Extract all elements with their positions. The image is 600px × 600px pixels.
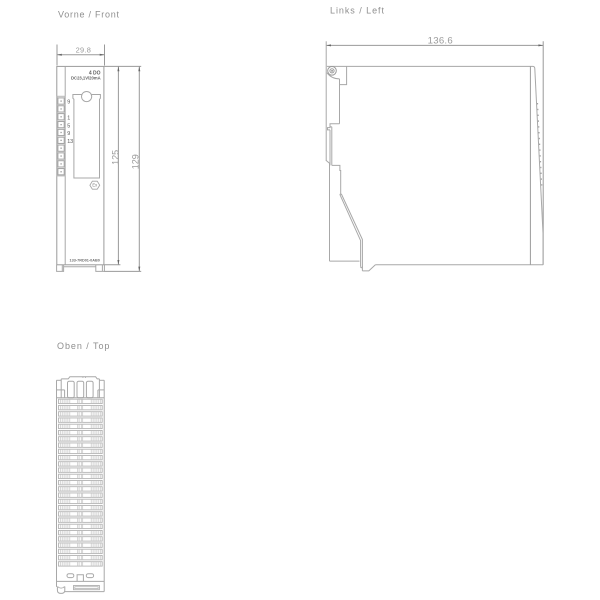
svg-text:Vorne / Front: Vorne / Front — [58, 10, 120, 20]
svg-text:13: 13 — [67, 139, 73, 145]
svg-text:Ex: Ex — [92, 183, 97, 188]
svg-text:136.6: 136.6 — [428, 36, 453, 47]
svg-text:Links / Left: Links / Left — [330, 6, 385, 16]
svg-text:133-7RD01-0AB0: 133-7RD01-0AB0 — [70, 259, 100, 263]
svg-text:9: 9 — [67, 100, 70, 106]
svg-text:29.8: 29.8 — [76, 45, 92, 54]
svg-text:Oben / Top: Oben / Top — [57, 341, 110, 351]
svg-text:DC23,1V/20mA: DC23,1V/20mA — [71, 76, 101, 81]
svg-text:1: 1 — [67, 116, 70, 122]
svg-text:9: 9 — [67, 131, 70, 137]
svg-text:5: 5 — [67, 123, 70, 129]
svg-text:129: 129 — [131, 154, 141, 169]
svg-text:125: 125 — [111, 150, 121, 165]
